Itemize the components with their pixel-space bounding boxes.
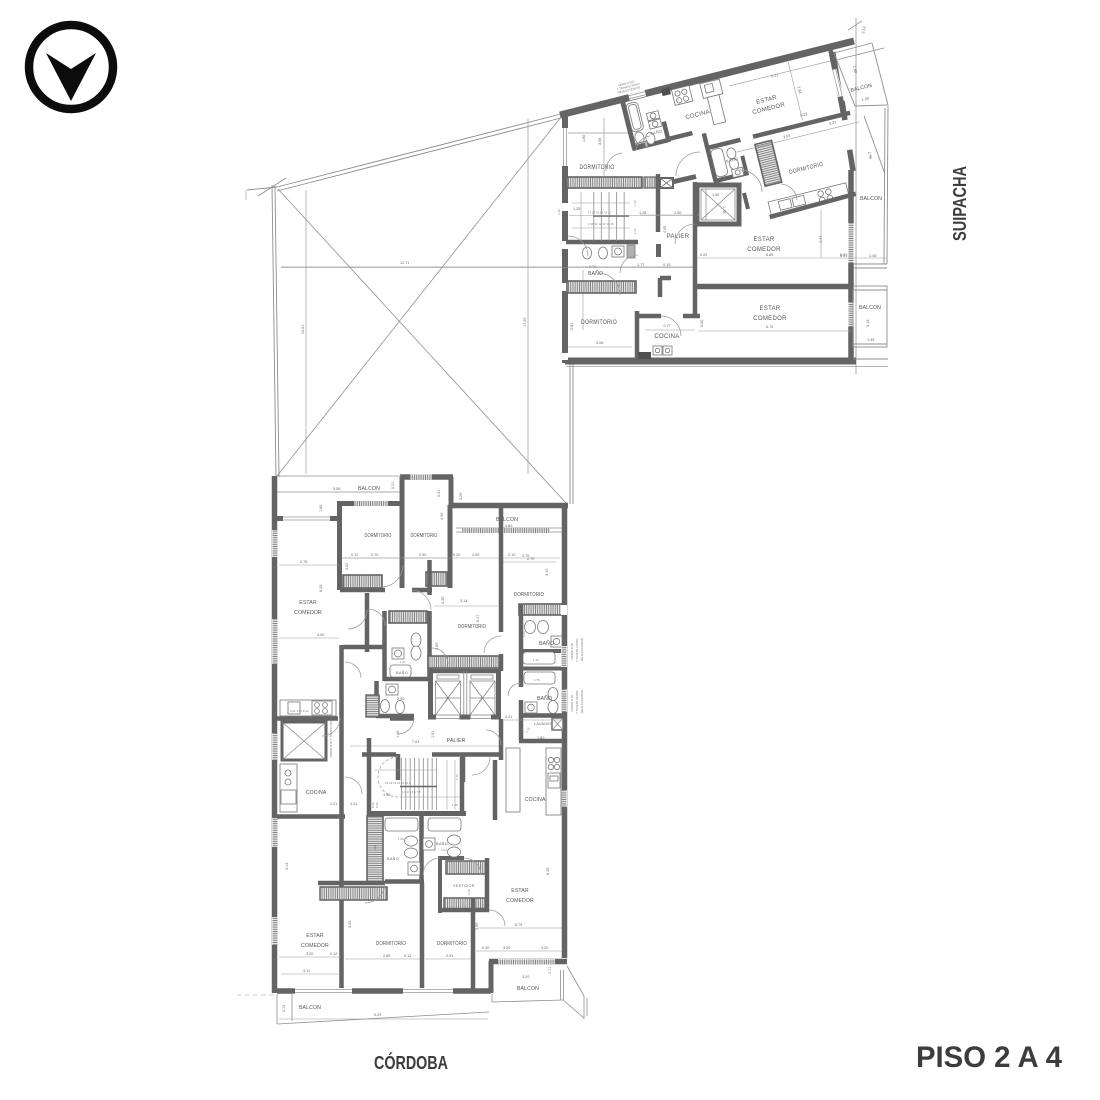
svg-text:4.60: 4.60 — [505, 524, 512, 528]
svg-text:3.06: 3.06 — [598, 138, 602, 145]
svg-text:0.12: 0.12 — [404, 954, 411, 958]
svg-text:1.64: 1.64 — [441, 848, 447, 852]
svg-text:DORMITORIO: DORMITORIO — [365, 533, 392, 539]
svg-text:3.20: 3.20 — [503, 946, 510, 950]
svg-text:COCINA: COCINA — [306, 790, 327, 796]
svg-text:1.71: 1.71 — [548, 967, 552, 974]
svg-text:12.61: 12.61 — [301, 324, 305, 334]
svg-text:3.14: 3.14 — [460, 599, 467, 603]
svg-text:4.20: 4.20 — [528, 715, 535, 719]
svg-text:2.90: 2.90 — [419, 553, 426, 557]
svg-text:0.21: 0.21 — [505, 715, 512, 719]
svg-text:2.70: 2.70 — [589, 265, 596, 269]
svg-text:CÓRDOBA: CÓRDOBA — [374, 1052, 448, 1073]
svg-text:9.29: 9.29 — [374, 1013, 381, 1017]
svg-text:3.00: 3.00 — [700, 320, 704, 327]
svg-text:2.81: 2.81 — [570, 323, 574, 330]
svg-text:6.85: 6.85 — [766, 253, 773, 257]
svg-text:COMEDOR: COMEDOR — [294, 610, 322, 616]
svg-text:COCINA: COCINA — [525, 797, 546, 803]
svg-text:PALIER: PALIER — [667, 234, 690, 240]
svg-text:6.45: 6.45 — [546, 868, 550, 875]
svg-text:1.57: 1.57 — [400, 660, 406, 664]
svg-text:5.58: 5.58 — [333, 487, 340, 491]
svg-text:1.45: 1.45 — [869, 254, 876, 258]
svg-text:BALCON: BALCON — [860, 196, 882, 202]
svg-text:3.10: 3.10 — [545, 569, 549, 576]
svg-text:COMEDOR: COMEDOR — [753, 316, 787, 322]
svg-text:1.86: 1.86 — [582, 135, 586, 142]
svg-text:SUIPACHA: SUIPACHA — [949, 166, 970, 241]
svg-text:1.50: 1.50 — [712, 193, 719, 197]
svg-text:2.77: 2.77 — [663, 324, 670, 328]
svg-text:1.60: 1.60 — [319, 505, 323, 512]
svg-text:12.71: 12.71 — [400, 261, 410, 265]
svg-text:1.28: 1.28 — [639, 211, 646, 215]
svg-text:2.10: 2.10 — [557, 209, 561, 215]
svg-text:BAÑO: BAÑO — [396, 670, 408, 675]
svg-text:COMEDOR: COMEDOR — [506, 898, 534, 904]
svg-text:1.40: 1.40 — [383, 793, 390, 797]
svg-text:0.22: 0.22 — [700, 253, 707, 257]
svg-text:1.25: 1.25 — [452, 803, 458, 807]
svg-text:1.21: 1.21 — [330, 802, 337, 806]
svg-text:0.20: 0.20 — [482, 946, 489, 950]
svg-text:3.20: 3.20 — [522, 975, 529, 979]
svg-text:6.20: 6.20 — [319, 585, 323, 592]
svg-text:2.70: 2.70 — [371, 553, 378, 557]
svg-text:6.75: 6.75 — [515, 923, 522, 927]
svg-text:ESTAR: ESTAR — [511, 888, 529, 894]
svg-text:BALCON: BALCON — [358, 486, 380, 492]
svg-text:0.35: 0.35 — [441, 597, 445, 604]
svg-text:DORMITORIO: DORMITORIO — [376, 941, 406, 947]
svg-text:9 10 11 12 13 14 15: 9 10 11 12 13 14 15 — [588, 222, 614, 226]
svg-text:1.25: 1.25 — [573, 207, 580, 211]
svg-text:3.29: 3.29 — [459, 493, 463, 500]
svg-text:4.00: 4.00 — [440, 513, 444, 520]
svg-text:BALCON: BALCON — [299, 1005, 321, 1011]
svg-text:ESTAR: ESTAR — [759, 306, 780, 312]
svg-text:VIDRIO FIJO: VIDRIO FIJO — [570, 642, 574, 660]
svg-text:PISO 2 A 4: PISO 2 A 4 — [916, 1041, 1062, 1074]
svg-text:6.75: 6.75 — [766, 325, 773, 329]
svg-text:1.50: 1.50 — [398, 837, 404, 841]
svg-text:1.77: 1.77 — [637, 263, 644, 267]
svg-text:4.05: 4.05 — [663, 226, 667, 233]
svg-text:BAÑO: BAÑO — [537, 695, 552, 702]
svg-text:2.70: 2.70 — [522, 554, 529, 558]
svg-text:1 2 3 4 5 6 7 8: 1 2 3 4 5 6 7 8 — [402, 790, 421, 794]
svg-text:0.20: 0.20 — [453, 553, 460, 557]
svg-text:BAÑO: BAÑO — [539, 640, 554, 647]
svg-text:3.20: 3.20 — [306, 952, 313, 956]
svg-text:0.10: 0.10 — [508, 553, 515, 557]
svg-text:5.47: 5.47 — [476, 615, 480, 622]
svg-text:BALCON: BALCON — [859, 305, 881, 311]
svg-text:0.21 1.57 0.12: 0.21 1.57 0.12 — [290, 709, 309, 713]
svg-text:DORMITORIO: DORMITORIO — [580, 165, 615, 171]
svg-text:DORMITORIO: DORMITORIO — [514, 592, 544, 598]
svg-text:2.76: 2.76 — [300, 560, 307, 564]
svg-text:ESTAR: ESTAR — [299, 600, 317, 606]
svg-text:0.21: 0.21 — [391, 482, 395, 489]
svg-text:1.76: 1.76 — [534, 678, 540, 682]
svg-text:REJA EXTERIOR: REJA EXTERIOR — [580, 690, 584, 713]
svg-text:2.00: 2.00 — [472, 553, 479, 557]
svg-text:0.21: 0.21 — [437, 490, 441, 497]
svg-text:3.13: 3.13 — [522, 631, 526, 637]
svg-text:2.20: 2.20 — [467, 889, 471, 895]
svg-text:0.21: 0.21 — [840, 253, 847, 257]
svg-text:3.11: 3.11 — [303, 969, 310, 973]
svg-text:1.80: 1.80 — [537, 736, 544, 740]
svg-text:DORMITORIO: DORMITORIO — [581, 320, 617, 326]
svg-text:2.91: 2.91 — [446, 954, 453, 958]
svg-text:VIDRIO FIJO: VIDRIO FIJO — [570, 694, 574, 712]
svg-text:7.03: 7.03 — [412, 740, 419, 744]
svg-text:COCINA: COCINA — [654, 334, 679, 340]
svg-text:3.15: 3.15 — [866, 320, 870, 327]
svg-text:1.76: 1.76 — [533, 658, 539, 662]
svg-text:DORMITORIO: DORMITORIO — [411, 533, 438, 539]
svg-text:1.50: 1.50 — [674, 211, 681, 215]
svg-text:Y TRANSLUCIDO: Y TRANSLUCIDO — [575, 690, 579, 714]
svg-text:3.02: 3.02 — [345, 563, 349, 570]
svg-text:3.50: 3.50 — [475, 923, 479, 930]
svg-text:BAÑO: BAÑO — [436, 841, 448, 846]
svg-text:0.15: 0.15 — [663, 263, 670, 267]
svg-text:3.20: 3.20 — [348, 921, 352, 928]
svg-text:17.25: 17.25 — [523, 317, 527, 327]
svg-text:0.12: 0.12 — [330, 952, 337, 956]
svg-text:3.06: 3.06 — [596, 341, 603, 345]
svg-text:2.00: 2.00 — [397, 697, 404, 701]
svg-text:COMEDOR: COMEDOR — [301, 943, 329, 949]
svg-text:4.00: 4.00 — [317, 633, 324, 637]
svg-text:15 14 13 12 11 10 9: 15 14 13 12 11 10 9 — [385, 781, 411, 785]
svg-text:0.12: 0.12 — [351, 553, 358, 557]
svg-text:1.21: 1.21 — [350, 802, 357, 806]
svg-text:1.12: 1.12 — [633, 200, 637, 206]
svg-text:2.14: 2.14 — [282, 1005, 286, 1012]
svg-text:1.12: 1.12 — [455, 774, 459, 780]
svg-text:DORMITORIO: DORMITORIO — [458, 624, 486, 630]
svg-text:1.72: 1.72 — [633, 228, 637, 234]
svg-text:3.20: 3.20 — [541, 946, 548, 950]
svg-text:0.15: 0.15 — [375, 802, 379, 808]
svg-text:ESTAR: ESTAR — [753, 237, 774, 243]
svg-text:3.13: 3.13 — [285, 863, 289, 870]
svg-text:1.51: 1.51 — [431, 731, 435, 738]
svg-text:PALIER: PALIER — [447, 738, 466, 744]
svg-text:1.45: 1.45 — [867, 338, 874, 342]
svg-text:DORMITORIO: DORMITORIO — [437, 941, 467, 947]
svg-text:1.78: 1.78 — [722, 206, 726, 213]
svg-text:REJA EXTERIOR: REJA EXTERIOR — [580, 638, 584, 661]
svg-text:BALCON: BALCON — [517, 986, 539, 992]
svg-text:COMEDOR: COMEDOR — [747, 247, 781, 253]
svg-text:2.81: 2.81 — [373, 844, 377, 850]
svg-text:VESTIDOR: VESTIDOR — [453, 884, 475, 888]
svg-text:Y TRANSLUCIDO: Y TRANSLUCIDO — [575, 638, 579, 662]
svg-text:2.85: 2.85 — [383, 954, 390, 958]
svg-text:BAÑO: BAÑO — [387, 856, 399, 861]
svg-text:VIDRIO FIJO Y TRANSLUCIDO: VIDRIO FIJO Y TRANSLUCIDO — [329, 716, 333, 758]
svg-text:17 16 15 14 13 12: 17 16 15 14 13 12 — [588, 211, 612, 215]
svg-text:ESTAR: ESTAR — [306, 933, 324, 939]
